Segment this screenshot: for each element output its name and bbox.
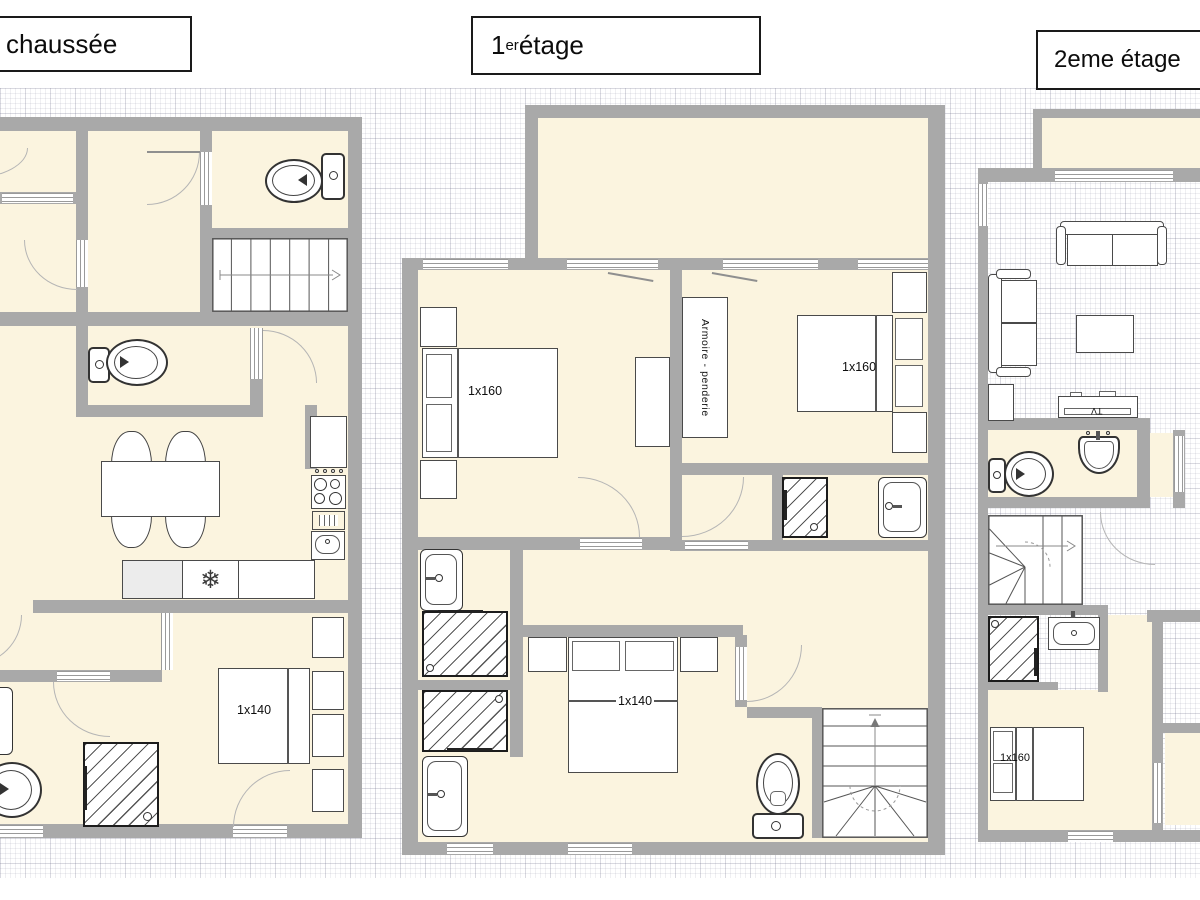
bathroom-sink [1048, 617, 1100, 650]
tv-label: TV [1091, 406, 1103, 416]
pillow [993, 763, 1013, 793]
floorplan-sheet: chaussée 1er étage 2eme étage [0, 0, 1200, 900]
staircase [988, 515, 1083, 605]
floor-area [1150, 433, 1173, 497]
coffee-table [1076, 315, 1134, 353]
sofa-cushion [1001, 323, 1037, 366]
sofa-cushion [1112, 234, 1158, 266]
floor-area [1165, 733, 1200, 825]
window [1068, 831, 1113, 842]
bed-headboard-line [1015, 727, 1017, 801]
wall [978, 168, 988, 842]
floor-area [1108, 615, 1152, 690]
wall [988, 682, 1058, 690]
side-table [988, 384, 1014, 421]
wall [988, 497, 1150, 508]
toilet-button [993, 471, 1001, 479]
floor-area [1042, 118, 1200, 168]
faucet-handle [1086, 431, 1090, 435]
wall [978, 605, 1108, 615]
faucet [1071, 611, 1075, 618]
sofa-arm [1056, 226, 1066, 265]
sofa-arm [996, 269, 1031, 279]
floorplan-second-floor: TV 1x160 [0, 0, 1200, 900]
toilet-flush [1016, 468, 1025, 480]
bed-size-label: 1x160 [1000, 752, 1030, 764]
door-arc [1100, 512, 1155, 565]
window [1174, 436, 1184, 492]
window [1153, 763, 1162, 823]
sofa-cushion [1067, 234, 1113, 266]
wall [1033, 109, 1200, 118]
sofa-arm [996, 367, 1031, 377]
faucet [1096, 431, 1100, 440]
sofa-cushion [1001, 280, 1037, 323]
sofa-arm [1157, 226, 1167, 265]
sink-drain [1071, 630, 1077, 636]
window [1055, 170, 1173, 181]
window [978, 184, 988, 226]
shower-door-handle [1034, 648, 1037, 676]
wall [1152, 723, 1200, 733]
shower-drain [991, 620, 999, 628]
bed-headboard-line [1032, 727, 1034, 801]
faucet-handle [1106, 431, 1110, 435]
sofa-back [988, 274, 1002, 373]
sofa-back [1060, 221, 1164, 235]
tv-stand: TV [1058, 396, 1138, 418]
